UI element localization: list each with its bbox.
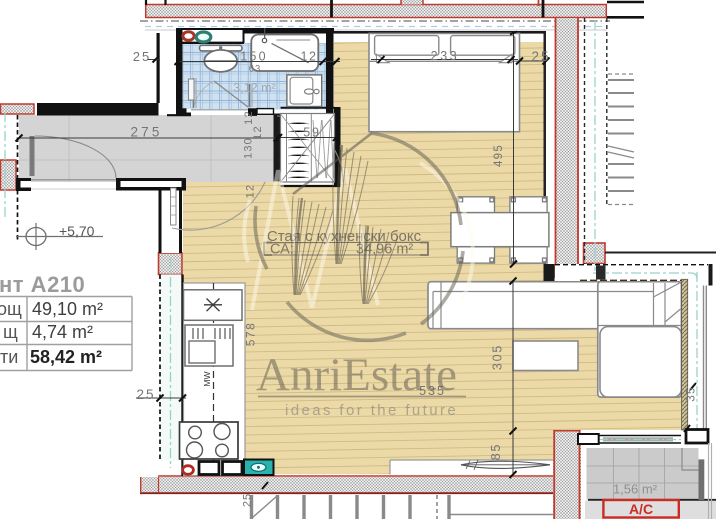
svg-text:ideas for the future: ideas for the future xyxy=(285,402,458,419)
svg-text:AnriEstate: AnriEstate xyxy=(256,349,457,401)
svg-text:A/C: A/C xyxy=(629,501,653,517)
svg-text:85: 85 xyxy=(489,443,503,461)
svg-text:578: 578 xyxy=(244,322,258,347)
svg-text:59: 59 xyxy=(303,126,321,140)
svg-text:25: 25 xyxy=(136,387,155,402)
svg-text:3,12 m²: 3,12 m² xyxy=(233,81,275,95)
svg-text:495: 495 xyxy=(493,144,505,167)
svg-text:MW: MW xyxy=(202,371,212,386)
svg-text:ощ: ощ xyxy=(0,299,22,319)
svg-text:35: 35 xyxy=(686,386,698,401)
svg-text:щ: щ xyxy=(3,322,18,342)
svg-text:4,74 m²: 4,74 m² xyxy=(32,322,93,342)
svg-text:233: 233 xyxy=(431,49,460,63)
svg-text:12: 12 xyxy=(301,50,318,64)
svg-text:+5,70: +5,70 xyxy=(59,223,95,239)
svg-text:305: 305 xyxy=(491,344,505,370)
svg-text:12: 12 xyxy=(245,184,257,199)
svg-text:63: 63 xyxy=(249,64,262,75)
svg-text:275: 275 xyxy=(130,125,162,140)
svg-text:58,42 m²: 58,42 m² xyxy=(30,347,102,367)
svg-text:1,56 m²: 1,56 m² xyxy=(613,482,658,497)
svg-text:25: 25 xyxy=(531,49,550,64)
svg-text:130: 130 xyxy=(243,137,255,159)
svg-text:150: 150 xyxy=(240,50,267,64)
svg-text:12: 12 xyxy=(243,110,255,125)
svg-text:25: 25 xyxy=(133,49,151,64)
svg-text:ти: ти xyxy=(0,347,18,367)
svg-text:нт A210: нт A210 xyxy=(0,272,85,297)
svg-text:49,10 m²: 49,10 m² xyxy=(32,299,103,319)
svg-text:25: 25 xyxy=(242,493,254,507)
